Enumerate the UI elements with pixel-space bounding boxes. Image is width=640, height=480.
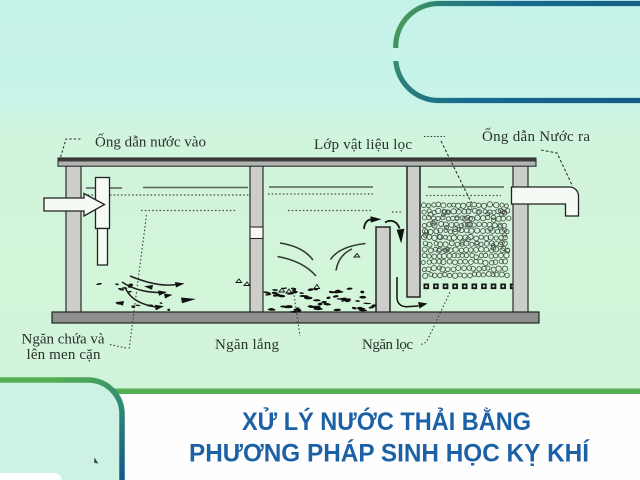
svg-text:Ống dẫn nước vào: Ống dẫn nước vào xyxy=(95,133,206,151)
svg-text:PHƯƠNG PHÁP SINH HỌC KỴ KHÍ: PHƯƠNG PHÁP SINH HỌC KỴ KHÍ xyxy=(189,439,590,468)
svg-text:Ngăn lắng: Ngăn lắng xyxy=(215,337,280,353)
svg-text:Ngăn chứa và: Ngăn chứa và xyxy=(22,332,105,348)
svg-text:Ống dẫn Nước ra: Ống dẫn Nước ra xyxy=(482,127,590,145)
svg-text:lên men cặn: lên men cặn xyxy=(27,347,102,363)
svg-text:Ngăn lọc: Ngăn lọc xyxy=(362,337,413,353)
svg-text:XỬ LÝ NƯỚC THẢI BẰNG: XỬ LÝ NƯỚC THẢI BẰNG xyxy=(242,406,531,436)
svg-text:Lớp vật liệu lọc: Lớp vật liệu lọc xyxy=(314,137,412,153)
